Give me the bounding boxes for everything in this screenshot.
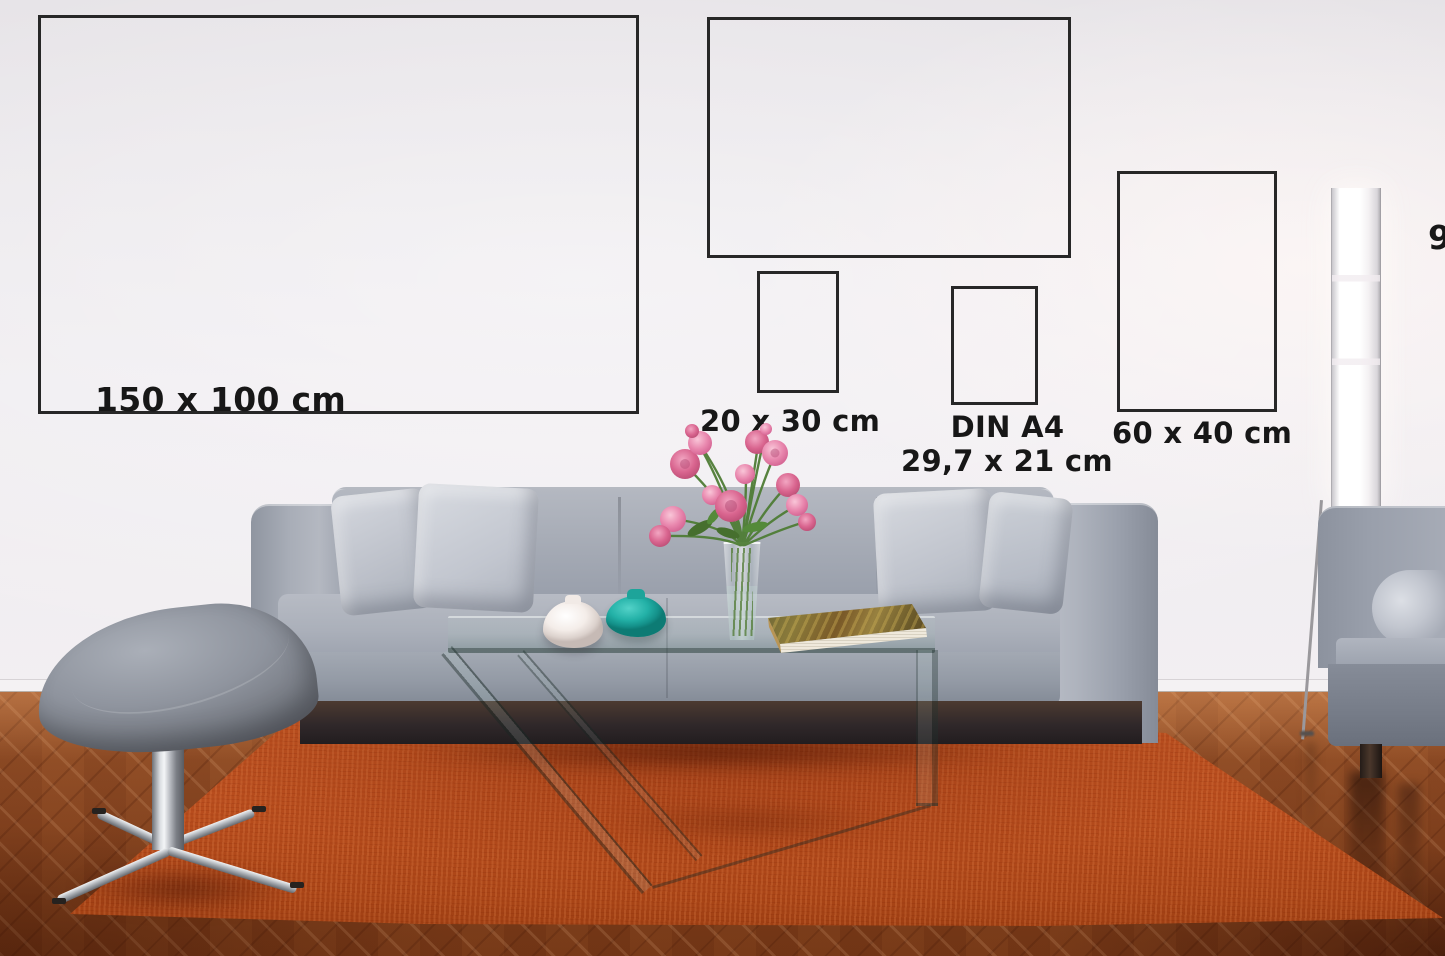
stool-pedestal [152,742,184,850]
sofa-seat-front [283,652,1060,706]
size-frame-150x100: 150 x 100 cm [38,15,639,414]
size-frame-din-a4 [951,286,1038,405]
size-sublabel-din-a4: 29,7 x 21 cm [893,446,1121,477]
size-frame-20x30 [757,271,839,393]
size-frame-90x60: 90 x 60 cm [707,17,1071,258]
size-label-150x100: 150 x 100 cm [95,383,346,418]
book [764,602,930,652]
flower-bouquet [640,423,820,553]
size-label-din-a4: DIN A4 [930,412,1085,443]
floor-reflection [1398,784,1420,954]
armchair-bolster-pillow [1372,570,1445,646]
stool-leg-tip [92,808,106,814]
sofa-seam [618,497,621,602]
floor-lamp-foot [1300,731,1314,736]
stool-leg-tip [52,898,66,904]
poster-size-guide-scene: 150 x 100 cm 90 x 60 cm 20 x 30 cm DIN A… [0,0,1445,956]
floor-reflection [1306,742,1315,837]
glass-table-right-panel [916,650,938,806]
white-vase [543,601,603,648]
size-label-60x40: 60 x 40 cm [1112,418,1290,449]
sofa-pillow [413,483,539,613]
size-label-90x60: 90 x 60 cm [1428,221,1445,256]
floor-lamp [1331,188,1381,510]
vase-stems [731,548,753,636]
sofa-pillow [978,491,1074,615]
stool-leg-tip [252,806,266,812]
stool-leg-tip [290,882,304,888]
teal-vase [606,596,666,637]
armchair-front [1328,664,1445,746]
sofa-base [300,701,1142,744]
size-frame-60x40 [1117,171,1277,412]
armchair-leg [1360,744,1382,778]
